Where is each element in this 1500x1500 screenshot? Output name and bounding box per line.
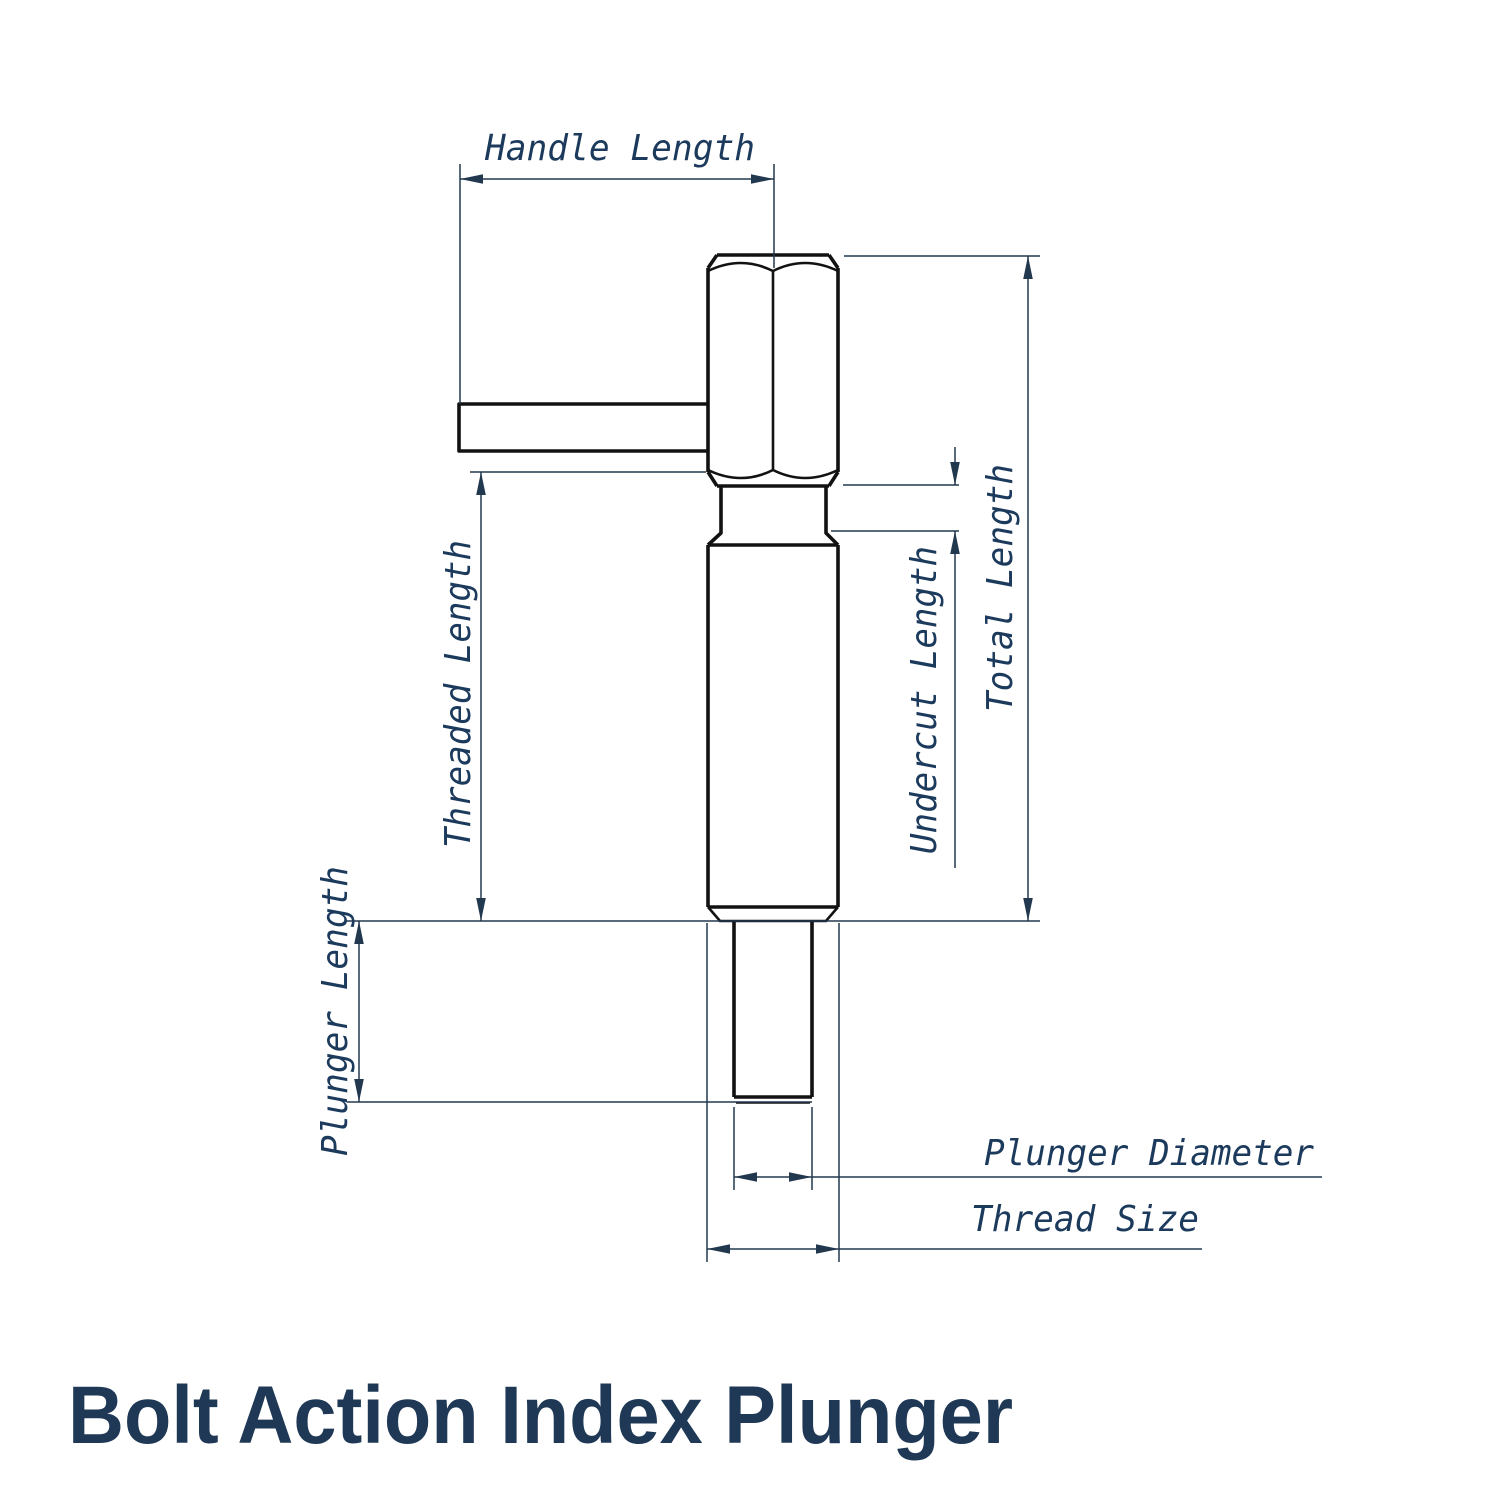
threaded-body-chamfer [708,907,838,921]
arrowhead-left [734,1172,757,1182]
arrowhead-up [950,531,960,554]
dim-handle-length: Handle Length [460,128,774,404]
dim-thread-size: Thread Size [707,923,1202,1262]
undercut-neck [708,486,838,545]
plunger-length-label: Plunger Length [315,866,356,1156]
arrowhead-right [789,1172,812,1182]
drawing-canvas: Handle Length Threaded Length Plunger Le… [0,0,1500,1500]
technical-drawing: Handle Length Threaded Length Plunger Le… [0,0,1500,1500]
total-length-label: Total Length [980,464,1021,712]
threaded-length-label: Threaded Length [438,540,479,848]
arrowhead-left [707,1244,730,1254]
arrowhead-down [476,898,486,921]
thread-size-extension-lines [707,923,839,1262]
page-title: Bolt Action Index Plunger [68,1370,1013,1461]
threaded-body [708,545,838,921]
thread-size-label: Thread Size [971,1199,1199,1240]
arrowhead-down [950,462,960,485]
undercut-length-extension-lines [831,485,959,531]
dim-threaded-length: Threaded Length [438,472,706,921]
handle-length-extension-lines [460,164,774,404]
hex-facet-arcs-top [708,263,838,271]
dim-undercut-length: Undercut Length [831,447,960,868]
threaded-body-edges [708,545,838,907]
plunger-pin-edges [734,921,812,1097]
plunger-length-extension-lines [347,921,1040,1102]
hex-head [708,255,838,486]
arrowhead-right [816,1244,839,1254]
dim-plunger-diameter: Plunger Diameter [734,1107,1322,1190]
plunger-pin [734,921,812,1103]
hex-facet-arcs-bottom [708,470,838,478]
arrowhead-up [1023,256,1033,279]
arrowhead-left [460,174,483,184]
dim-plunger-length: Plunger Length [315,866,1040,1156]
arrowhead-down [1023,898,1033,921]
plunger-diameter-label: Plunger Diameter [984,1133,1314,1174]
undercut-length-label: Undercut Length [904,546,945,854]
part-outline [459,255,838,1103]
arrowhead-up [476,472,486,495]
handle-length-label: Handle Length [484,128,755,169]
handle-bar [459,404,708,451]
dimensions: Handle Length Threaded Length Plunger Le… [315,128,1322,1262]
arrowhead-right [751,174,774,184]
